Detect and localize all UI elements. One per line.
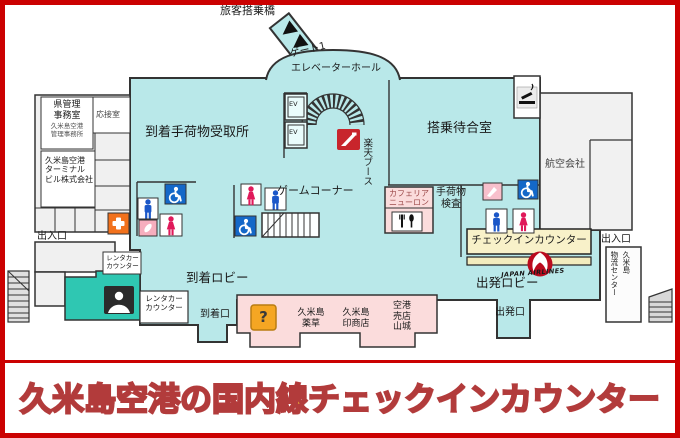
information-mark: ? [251, 305, 276, 330]
accessible-toilet-icon [235, 216, 256, 236]
pref-office-sub-label: 久米島空港 管理事務所 [44, 123, 90, 138]
baggage-claim-label: 到着手荷物受取所 [145, 125, 249, 140]
rental-counter-label: レンタカー カウンター [105, 255, 140, 270]
boarding-bridge-label: 旅客搭乗橋 [220, 5, 275, 18]
checkin-counter-label: チェックインカウンター [469, 234, 589, 246]
entrance-exit-right-label: 出入口 [601, 234, 631, 246]
departure-gate-label: 出発口 [495, 307, 525, 319]
shop-airport-label: 空港 売店 山城 [387, 301, 417, 333]
smoking-area-icon [514, 76, 540, 118]
razor-room-icon [483, 183, 502, 200]
first-aid-icon [108, 213, 129, 234]
reception-room-label: 応接室 [96, 110, 120, 119]
cafeteria-label: カフェリア ニューロン [386, 189, 432, 208]
arrival-gate-label: 到着口 [200, 309, 230, 321]
stairs-icon-left [8, 271, 29, 322]
departure-lobby-label: 出発ロビー [476, 276, 539, 291]
female-toilet-icon [513, 209, 534, 233]
floor-map-canvas [0, 0, 680, 360]
accessible-toilet-icon [165, 184, 186, 204]
male-toilet-icon [138, 198, 158, 219]
rakuten-booth-label: 楽天ブース [361, 138, 372, 196]
rental-counter-label: レンタカー カウンター [142, 295, 186, 313]
accessible-toilet-icon [518, 180, 538, 199]
shop-yakusou-label: 久米島 薬草 [292, 308, 330, 329]
logistics-center-label: 久米島 [621, 251, 630, 321]
female-toilet-icon [241, 184, 261, 205]
stairs-icon-center [262, 213, 319, 237]
airline-company-label: 航空会社 [545, 159, 585, 171]
game-corner-label: ゲームコーナー [277, 185, 354, 198]
female-toilet-icon [160, 214, 182, 236]
elevator-hall-label: エレベーターホール [291, 63, 381, 75]
airport-floor-map-page: 旅客搭乗橋 ゲート1 エレベーターホール EV EV 到着手荷物受取所 搭乗待合… [0, 0, 680, 438]
ev-label: EV [289, 101, 298, 109]
caption-title: 久米島空港の国内線チェックインカウンター [20, 374, 660, 420]
terminal-company-label: 久米島空港 ターミナル ビル株式会社 [45, 156, 93, 184]
caption-banner: 久米島空港の国内線チェックインカウンター [5, 360, 675, 431]
ev-label: EV [289, 129, 298, 137]
logistics-center-label: 物流センター [609, 251, 618, 321]
escalator-icon [337, 129, 360, 150]
male-toilet-icon [486, 209, 507, 233]
pref-office-label: 県管理 事務室 [47, 100, 87, 121]
baggage-inspection-label: 手荷物 検査 [434, 187, 468, 211]
rental-car-area [65, 271, 140, 320]
arrival-lobby-label: 到着ロビー [186, 271, 249, 286]
stairs-icon-right [649, 289, 672, 322]
shop-inshoten-label: 久米島 印商店 [334, 308, 378, 329]
entrance-exit-left-label: 出入口 [37, 231, 67, 243]
waiting-room-label: 搭乗待合室 [427, 121, 492, 136]
nursing-room-icon [139, 220, 157, 236]
